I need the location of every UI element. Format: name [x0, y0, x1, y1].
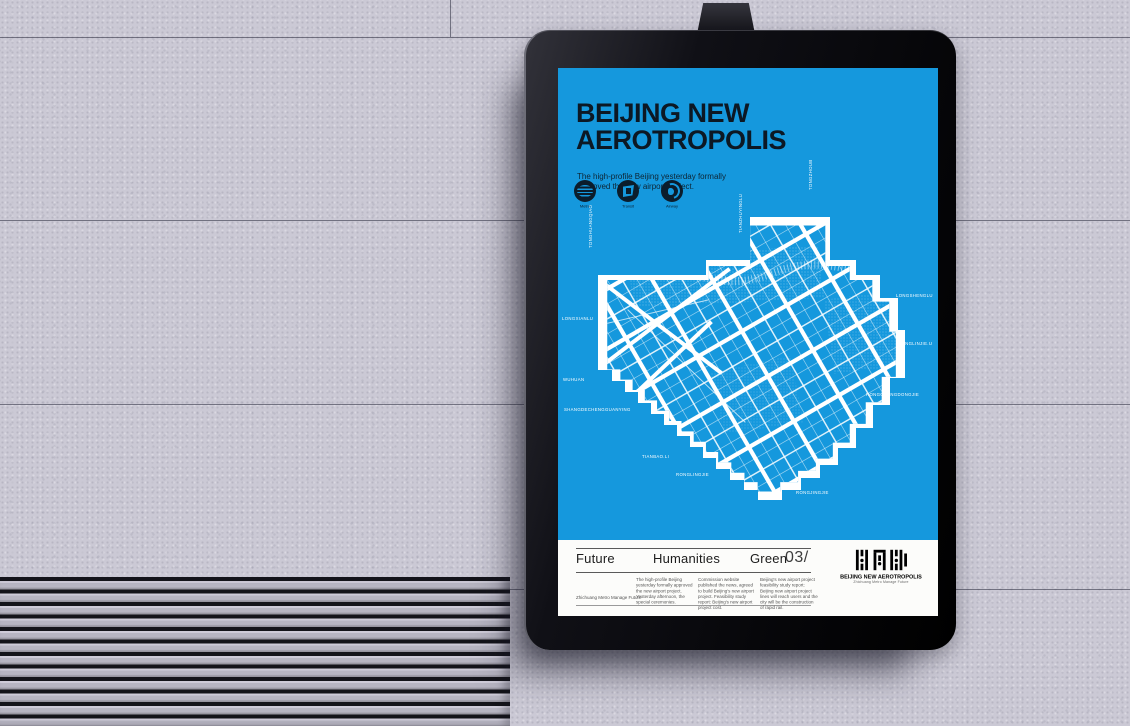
aerotropolis-logo-icon	[855, 546, 907, 574]
street-label: SHANGDECHENGGUANYING	[564, 407, 631, 412]
footer-rule-mid	[576, 572, 811, 573]
wall-background: BEIJING NEW AEROTROPOLIS The high-profil…	[0, 0, 1130, 726]
poster-title-line2: AEROTROPOLIS	[576, 127, 786, 154]
poster-footer-bar: Future Humanities Green 03/ The high-pro…	[558, 540, 938, 616]
footer-heading-humanities: Humanities	[653, 551, 720, 566]
poster-title: BEIJING NEW AEROTROPOLIS	[576, 100, 786, 154]
poster-screen: BEIJING NEW AEROTROPOLIS The high-profil…	[558, 68, 938, 616]
street-label: TONGHUANGQIAO	[588, 205, 593, 248]
street-label: HONGLINJIE.U	[898, 341, 932, 346]
vent-grille	[0, 577, 510, 726]
footer-footnote: Zhichuang Metro Manage Future	[576, 595, 642, 600]
issue-number: 03/	[785, 549, 809, 567]
street-label: RONGJINGJIE	[796, 490, 829, 495]
poster-title-line1: BEIJING NEW	[576, 100, 786, 127]
logo-title: BEIJING NEW AEROTROPOLIS	[840, 574, 922, 580]
footer-heading-future: Future	[576, 551, 615, 566]
wall-seam-vertical	[450, 0, 451, 37]
city-map: TONGHUANGQIAO TIANZHUYINGLU TONGZHOUBEIL…	[558, 160, 938, 510]
footer-rule-top	[576, 548, 811, 549]
street-label: WUHUAN	[563, 377, 584, 382]
aerotropolis-logo: BEIJING NEW AEROTROPOLIS Zhichuang Metro…	[836, 546, 926, 596]
logo-text: BEIJING NEW AEROTROPOLIS Zhichuang Metro…	[836, 574, 926, 585]
street-label: LONGSHENGLU	[896, 293, 933, 298]
footer-column-2: Commission website published the news, a…	[698, 577, 756, 611]
street-label: RONGLINGJIE	[676, 472, 709, 477]
logo-tagline: Zhichuang Metro Manage Future	[836, 581, 926, 585]
street-label: TIANZHUYINGLU	[738, 194, 743, 233]
street-label: TONGZHOUBEILU	[808, 160, 813, 190]
street-label: LONGXIANLU	[562, 316, 593, 321]
footer-column-1: The high-profile Beijing yesterday forma…	[636, 577, 694, 605]
street-label: TIANBAO.LI	[642, 454, 669, 459]
street-label: RONGCHANGDONGJIE	[866, 392, 919, 397]
footer-heading-green: Green	[750, 551, 787, 566]
tablet-frame: BEIJING NEW AEROTROPOLIS The high-profil…	[524, 30, 956, 650]
footer-column-3: Beijing's new airport project feasibilit…	[760, 577, 818, 611]
